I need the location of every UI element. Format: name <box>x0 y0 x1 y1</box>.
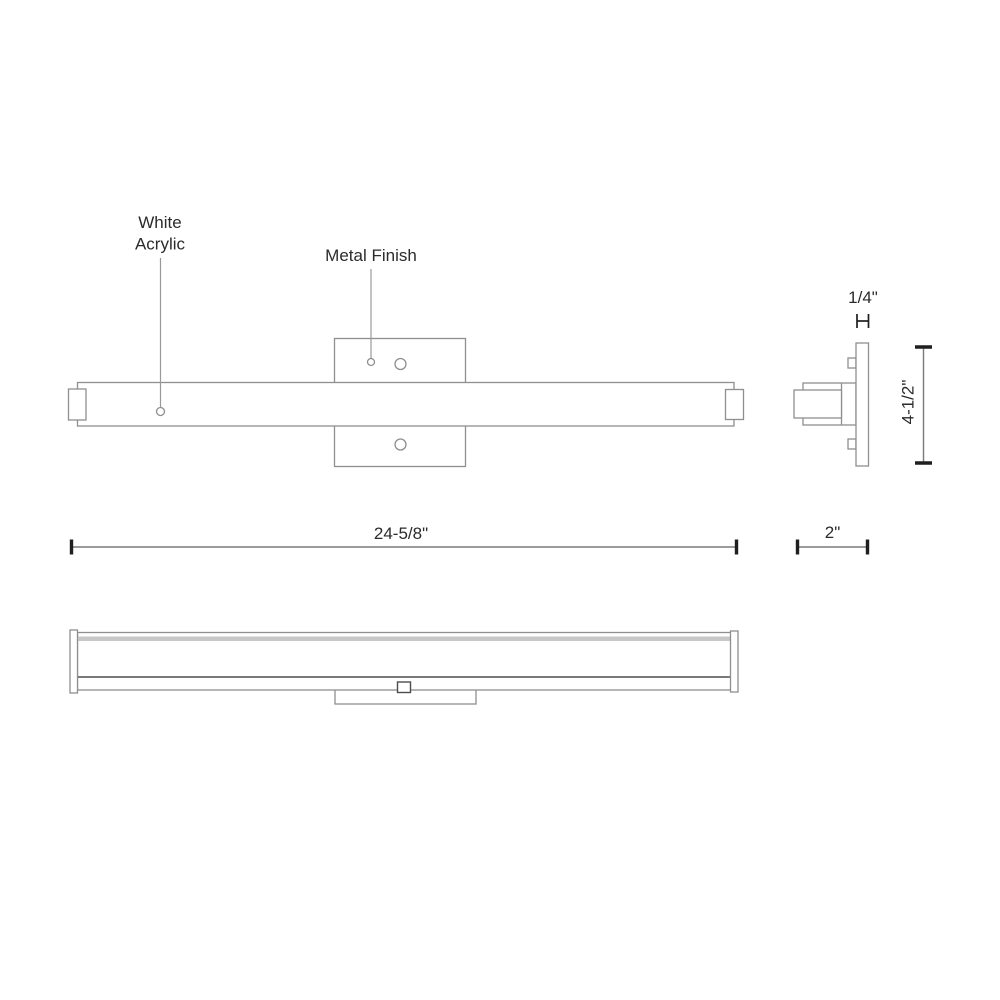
left-end-cap-top-view <box>69 389 87 420</box>
side-view: 1/4" 4-1/2" <box>794 288 932 466</box>
width-dimension: 24-5/8" <box>72 524 737 555</box>
fixture-bar-top-view <box>78 383 735 427</box>
white-acrylic-label-line1: White <box>138 213 181 232</box>
height-dimension: 4-1/2" <box>899 347 933 463</box>
back-plate-side-view <box>856 343 869 466</box>
mounting-tab-top <box>848 358 856 368</box>
plate-thickness-value: 1/4" <box>848 288 878 307</box>
width-value: 24-5/8" <box>374 524 428 543</box>
white-acrylic-label-line2: Acrylic <box>135 235 186 254</box>
vanity-light-dimension-drawing: White Acrylic Metal Finish 1/4" <box>0 0 1000 1000</box>
front-view <box>70 630 738 704</box>
technical-drawing-page: White Acrylic Metal Finish 1/4" <box>0 0 1000 1000</box>
mounting-tab-bottom <box>848 439 856 449</box>
height-value: 4-1/2" <box>899 380 918 425</box>
right-end-cap-front-view <box>731 631 739 692</box>
depth-value: 2" <box>825 523 841 542</box>
metal-finish-label: Metal Finish <box>325 246 417 265</box>
left-end-cap-front-view <box>70 630 78 693</box>
right-end-cap-top-view <box>726 390 744 420</box>
center-notch <box>398 682 411 693</box>
acrylic-lens-side-view <box>794 390 842 418</box>
mounting-hole-lower <box>395 439 406 450</box>
plate-thickness-dimension: 1/4" <box>848 288 878 328</box>
mounting-hole-upper <box>395 359 406 370</box>
depth-dimension: 2" <box>798 523 868 555</box>
top-view: White Acrylic Metal Finish <box>69 213 744 467</box>
metal-channel-band <box>79 637 731 642</box>
